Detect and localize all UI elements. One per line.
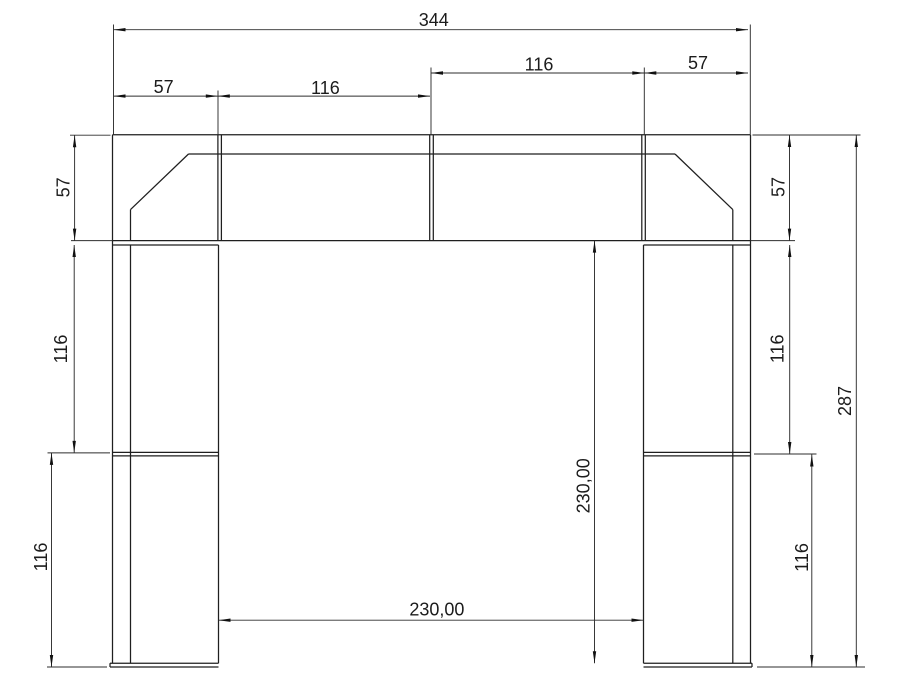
svg-text:344: 344	[419, 10, 449, 30]
svg-text:230,00: 230,00	[409, 600, 464, 620]
svg-text:230,00: 230,00	[574, 458, 594, 513]
svg-text:57: 57	[154, 77, 174, 97]
svg-text:57: 57	[769, 177, 789, 197]
svg-text:287: 287	[835, 386, 855, 416]
svg-text:116: 116	[31, 543, 51, 572]
svg-text:116: 116	[311, 78, 340, 98]
svg-text:116: 116	[51, 335, 71, 364]
svg-text:57: 57	[54, 177, 74, 197]
svg-text:57: 57	[688, 53, 708, 73]
svg-text:116: 116	[525, 55, 554, 75]
svg-text:116: 116	[768, 334, 788, 363]
svg-text:116: 116	[792, 543, 812, 572]
